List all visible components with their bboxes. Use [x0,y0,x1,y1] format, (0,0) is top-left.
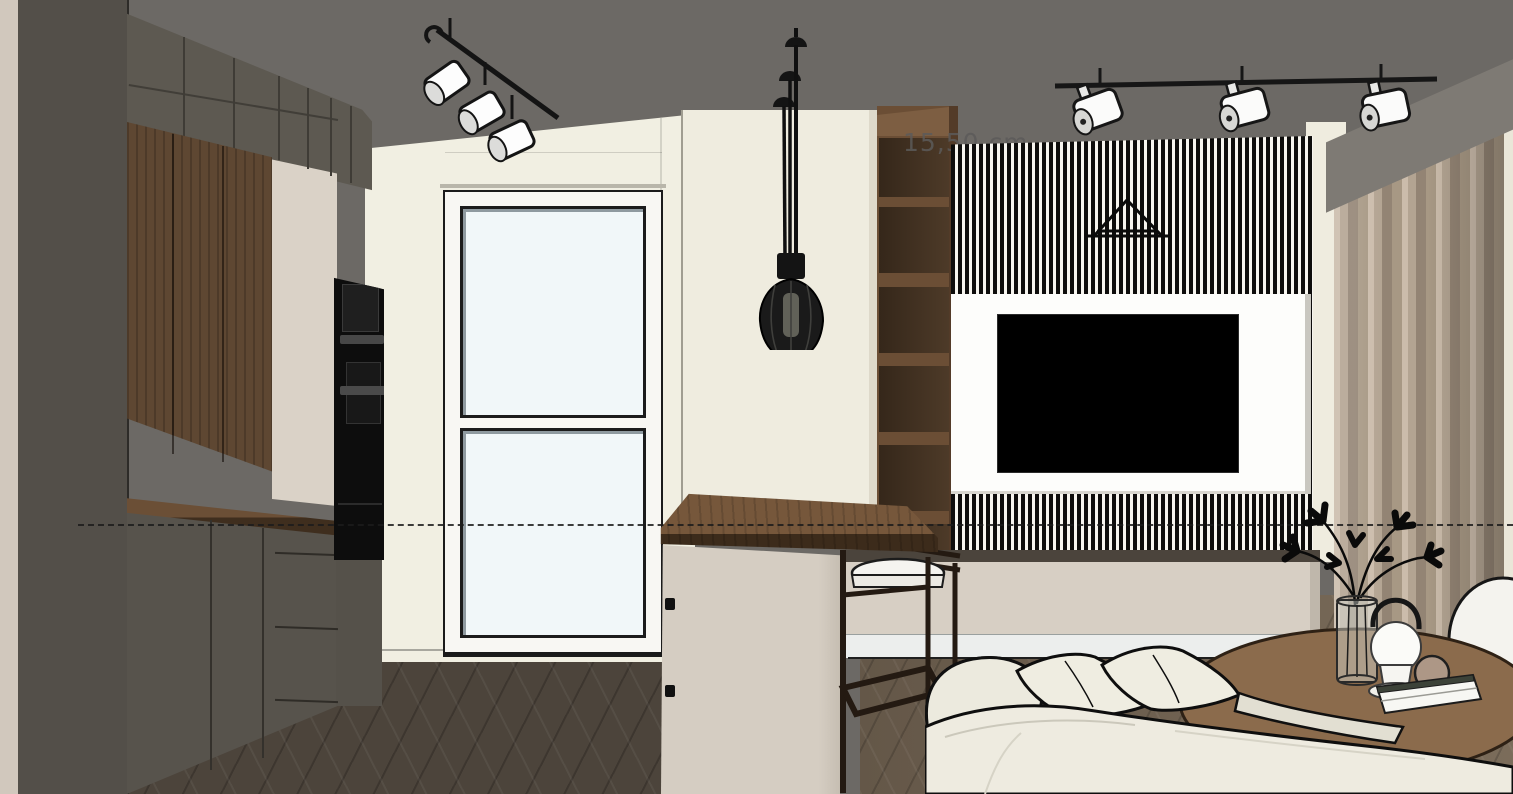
track-light-left [400,8,575,175]
island-handle [665,598,675,610]
shelf-compartment [879,207,949,273]
door-threshold [443,652,663,655]
kitchen-niche-wall [272,156,337,506]
cabinet-seam [278,76,280,160]
plant-branches [1283,505,1441,605]
shelf-compartment [879,287,949,353]
island-base [661,540,840,794]
near-wall-strip [0,0,18,794]
tall-cabinet-panel [18,0,129,794]
cabinet-seam [172,134,174,454]
below-oven-cabinet [336,556,382,706]
tv-screen [997,314,1239,473]
spotlight [483,119,536,164]
glazed-door [443,190,663,657]
walnut-cabinet-doors [127,122,272,475]
microwave-handle [340,335,384,344]
spotlight [418,59,471,109]
living-furniture-group [925,475,1513,794]
spotlight [1354,76,1412,132]
island-handle [665,685,675,697]
pendant-lamp [745,25,845,350]
track-light-right [1048,50,1448,150]
cabinet-seam [330,98,332,176]
cabinet-seam [307,88,309,169]
appliance-seam [338,503,382,505]
cabinet-seam [233,58,235,149]
microwave-screen [342,284,379,332]
cabinet-seam [183,37,185,137]
appliance-column [334,275,384,560]
3d-viewport[interactable]: 15,50 cm [0,0,1513,794]
cabinet-seam [262,528,264,758]
triangle-wall-decor [1085,195,1175,245]
door-pane-top [460,206,646,418]
cabinet-seam [350,106,352,183]
shelf-compartment [879,366,949,432]
oven-handle [340,386,386,395]
cabinet-seam [210,520,212,770]
cabinet-seam [222,146,224,462]
door-lintel-shadow [440,184,666,188]
door-pane-bottom [460,428,646,638]
